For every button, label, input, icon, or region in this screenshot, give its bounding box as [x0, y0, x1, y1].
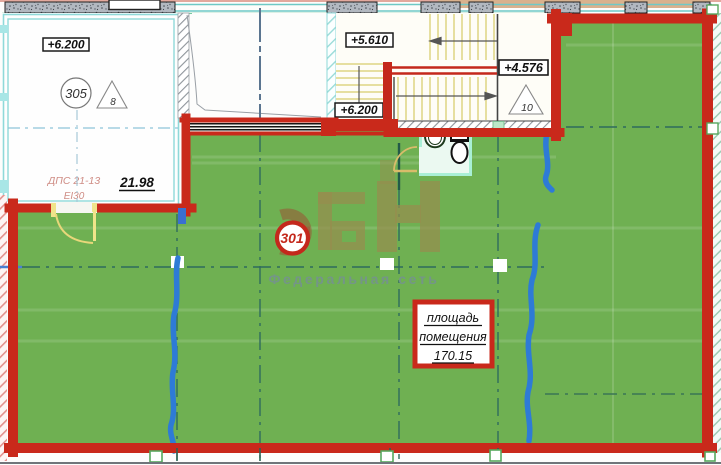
svg-text:305: 305 [65, 86, 87, 101]
svg-text:+6.200: +6.200 [47, 38, 84, 52]
svg-text:10: 10 [521, 102, 533, 114]
svg-text:301: 301 [280, 230, 304, 246]
svg-text:помещения: помещения [419, 330, 487, 344]
svg-text:170.15: 170.15 [434, 349, 472, 363]
svg-text:ДПС 21-13: ДПС 21-13 [47, 175, 101, 187]
svg-text:ЕІ30: ЕІ30 [64, 191, 85, 202]
svg-text:+5.610: +5.610 [351, 33, 388, 47]
svg-text:+6.200: +6.200 [340, 103, 377, 117]
svg-text:21.98: 21.98 [119, 175, 154, 190]
svg-text:площадь: площадь [427, 311, 479, 325]
svg-text:+4.576: +4.576 [504, 61, 544, 75]
svg-text:8: 8 [110, 97, 116, 108]
svg-text:Федеральная сеть: Федеральная сеть [269, 271, 440, 287]
